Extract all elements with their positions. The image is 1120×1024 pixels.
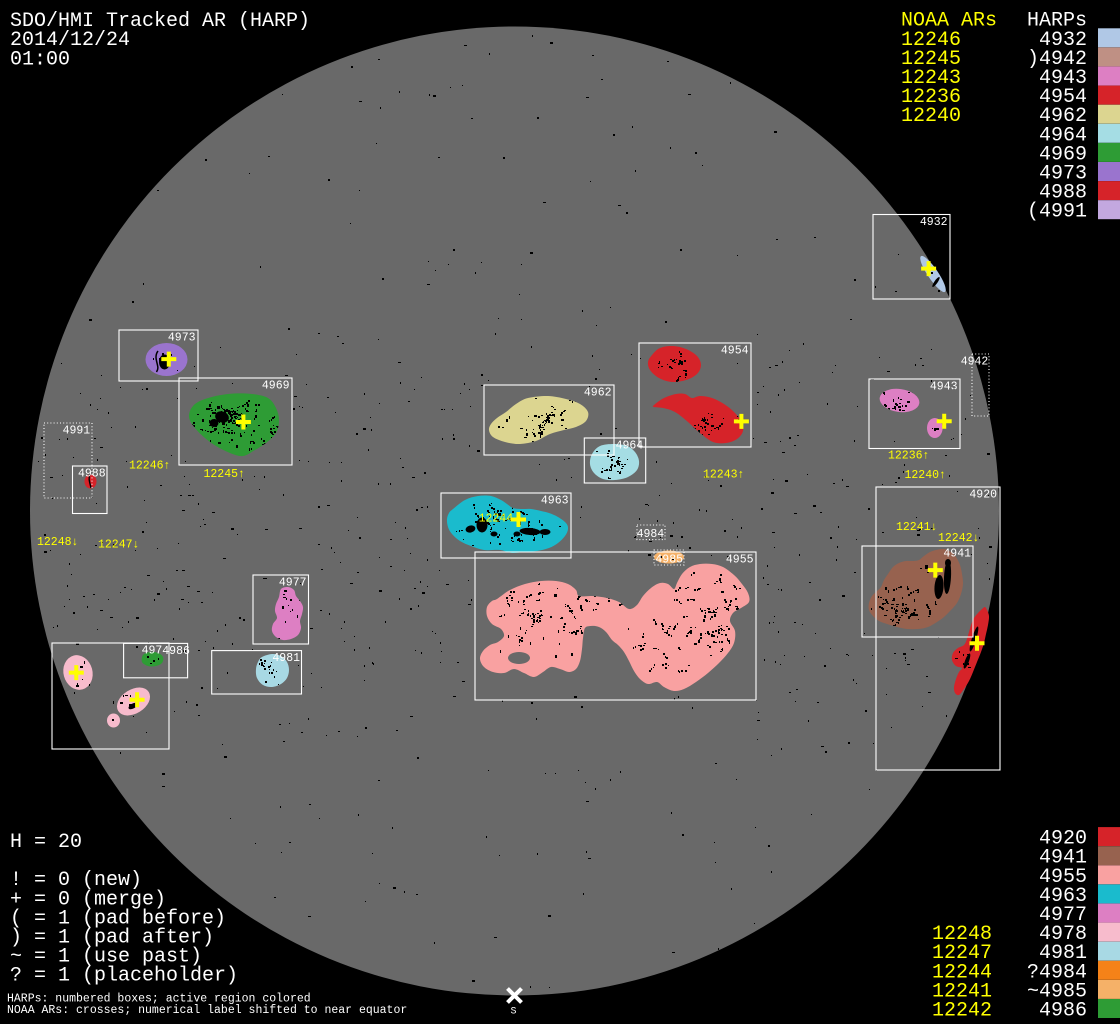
svg-text:4955: 4955 xyxy=(726,554,754,567)
svg-text:4973: 4973 xyxy=(168,332,196,345)
svg-text:4954: 4954 xyxy=(721,345,749,358)
svg-text:4962: 4962 xyxy=(584,387,612,400)
svg-text:4977: 4977 xyxy=(279,577,307,590)
svg-text:01:00: 01:00 xyxy=(10,48,70,71)
svg-text:4985: 4985 xyxy=(655,554,683,567)
svg-text:12240: 12240 xyxy=(901,105,961,128)
svg-text:4981: 4981 xyxy=(272,652,300,665)
svg-text:S: S xyxy=(510,1007,516,1018)
svg-text:12245↑: 12245↑ xyxy=(204,468,245,481)
svg-text:4942: 4942 xyxy=(961,356,989,369)
svg-text:12241↓: 12241↓ xyxy=(896,521,937,534)
svg-text:12244: 12244 xyxy=(479,513,514,526)
svg-text:4941: 4941 xyxy=(943,548,971,561)
svg-text:? = 1 (placeholder): ? = 1 (placeholder) xyxy=(10,965,238,988)
svg-text:12246↑: 12246↑ xyxy=(129,460,170,473)
svg-text:4986: 4986 xyxy=(162,645,190,658)
svg-text:4963: 4963 xyxy=(541,495,569,508)
svg-text:12242↓: 12242↓ xyxy=(938,532,979,545)
svg-text:12243↑: 12243↑ xyxy=(703,469,744,482)
svg-text:NOAA ARs: crosses; numerical l: NOAA ARs: crosses; numerical label shift… xyxy=(7,1004,407,1017)
svg-text:4943: 4943 xyxy=(930,381,958,394)
svg-text:4932: 4932 xyxy=(920,216,948,229)
svg-text:(4991: (4991 xyxy=(1027,201,1087,224)
svg-text:12242: 12242 xyxy=(932,1000,992,1023)
svg-text:4920: 4920 xyxy=(969,489,997,502)
svg-text:12247↓: 12247↓ xyxy=(98,539,139,552)
svg-text:H = 20: H = 20 xyxy=(10,831,82,854)
svg-text:4984: 4984 xyxy=(637,528,665,541)
svg-text:4991: 4991 xyxy=(63,425,91,438)
svg-text:497: 497 xyxy=(142,645,163,658)
svg-text:4988: 4988 xyxy=(78,468,106,481)
svg-text:12236↑: 12236↑ xyxy=(888,450,929,463)
svg-text:4969: 4969 xyxy=(262,380,290,393)
svg-text:12240↑: 12240↑ xyxy=(905,469,946,482)
svg-text:4986: 4986 xyxy=(1039,1000,1087,1023)
svg-text:4964: 4964 xyxy=(616,440,644,453)
svg-text:12248↓: 12248↓ xyxy=(37,536,78,549)
